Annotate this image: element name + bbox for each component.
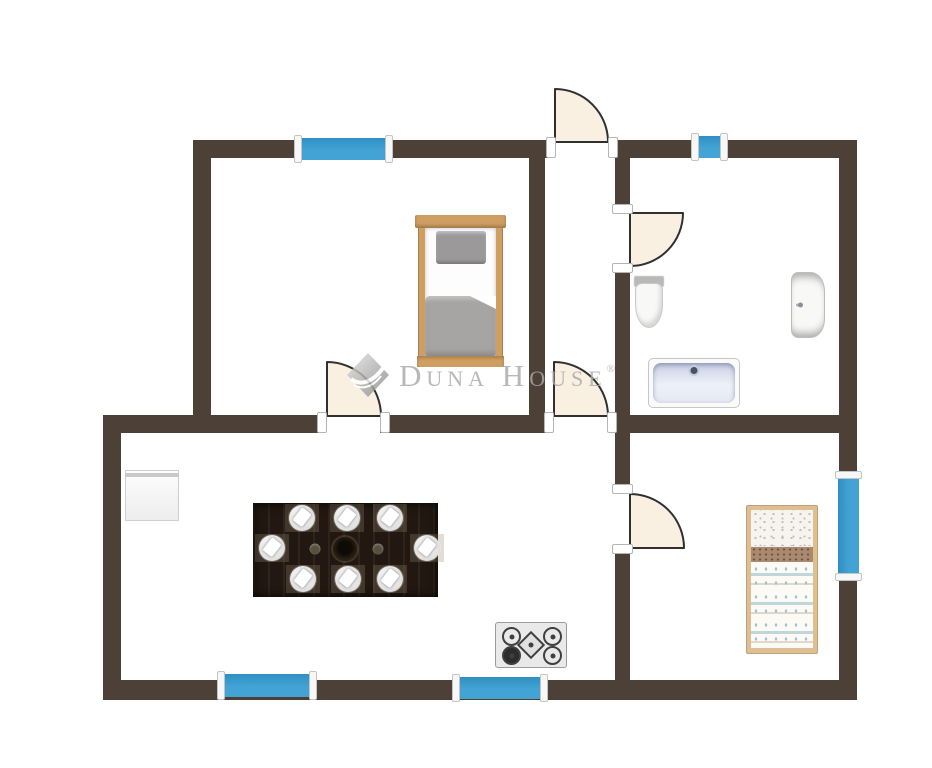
- door-jamb: [612, 263, 633, 273]
- door-jamb: [380, 412, 390, 433]
- child-bedroom-door-swing: [630, 494, 684, 548]
- door-jamb: [546, 137, 556, 158]
- registered-mark: ®: [607, 363, 615, 375]
- watermark: Duna House®: [346, 352, 615, 398]
- door-jamb: [612, 544, 633, 554]
- entry-door-swing: [555, 89, 608, 142]
- door-jamb: [607, 412, 617, 433]
- watermark-brand-text: Duna House®: [399, 360, 615, 391]
- door-jamb: [612, 204, 633, 214]
- door-jamb: [612, 484, 633, 494]
- door-jamb: [544, 412, 554, 433]
- duna-house-logo-icon: [346, 352, 390, 398]
- bathroom-door-swing: [630, 213, 683, 266]
- door-jamb: [317, 412, 327, 433]
- floorplan-canvas: Duna House®: [0, 0, 932, 768]
- door-jamb: [608, 137, 618, 158]
